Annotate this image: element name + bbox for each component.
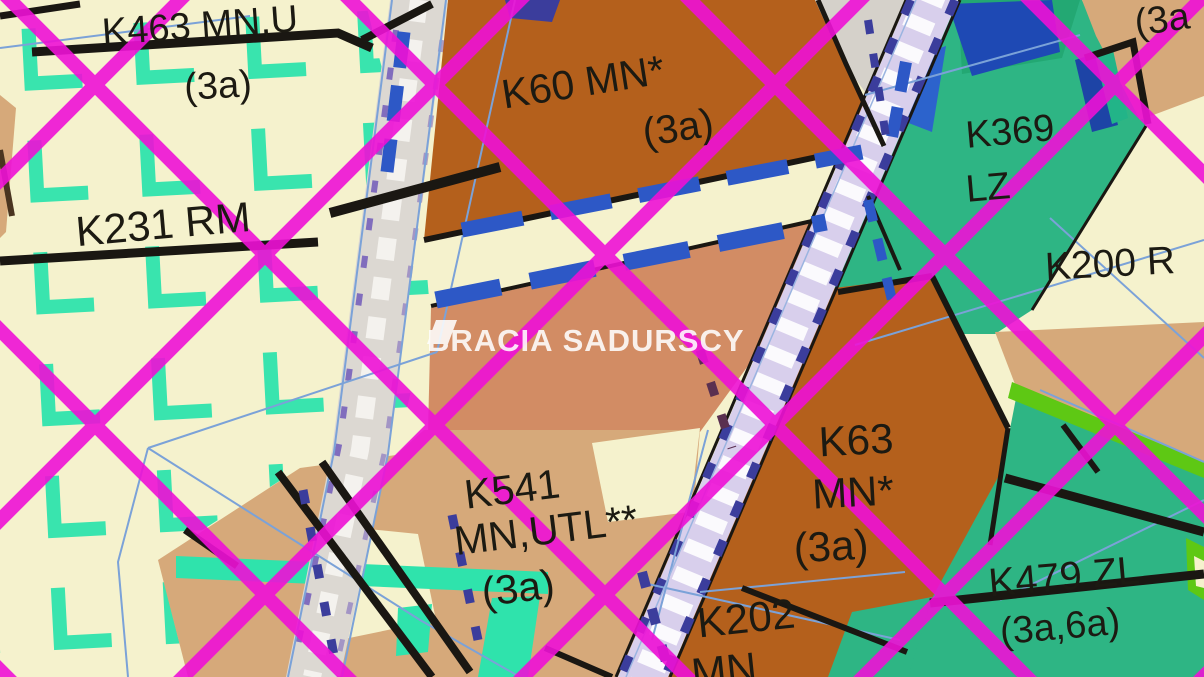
zone-k202-label2: MN — [689, 643, 759, 677]
zoning-map-canvas: K463 MN,U (3a) K231 RM K60 MN* (3a) K369… — [0, 0, 1204, 677]
zone-corner-suffix: (3a — [1132, 0, 1193, 45]
zone-k369-label: K369 — [964, 107, 1056, 157]
zone-k63-label2: MN* — [811, 466, 895, 517]
map-viewport[interactable]: K463 MN,U (3a) K231 RM K60 MN* (3a) K369… — [0, 0, 1204, 677]
zone-k200-label: K200 R — [1044, 239, 1176, 289]
zone-k541-suffix: (3a) — [479, 561, 557, 616]
zone-k463-suffix: (3a) — [183, 63, 253, 108]
zone-k63-label: K63 — [817, 415, 894, 466]
zone-k369-label2: LZ — [964, 165, 1012, 211]
zone-k63-suffix: (3a) — [792, 521, 869, 572]
